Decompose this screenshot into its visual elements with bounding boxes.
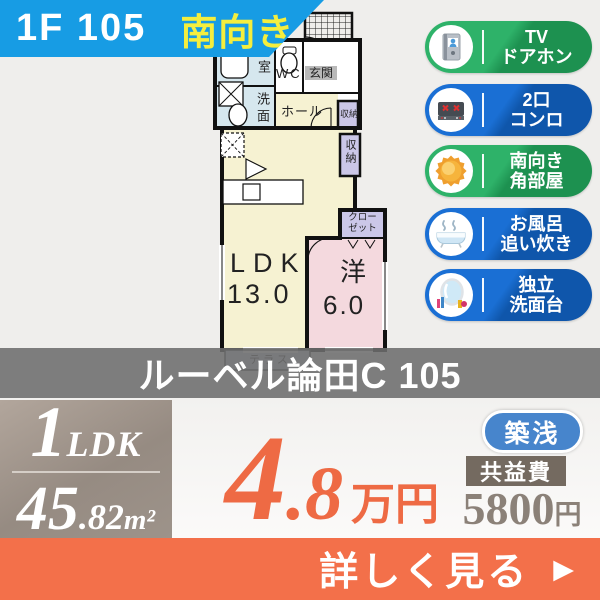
gas-stove-icon xyxy=(429,88,473,132)
badge-line2: ドアホン xyxy=(501,47,573,67)
feature-badge-tv-doorphone: TVドアホン xyxy=(425,21,592,73)
badge-line2: 追い炊き xyxy=(501,234,573,254)
bathtub-icon xyxy=(429,212,473,256)
feature-badge-stove: 2口コンロ xyxy=(425,84,592,136)
washstand-icon xyxy=(429,273,473,317)
badge-line1: TV xyxy=(525,27,548,47)
badge-line1: お風呂 xyxy=(510,214,564,234)
feature-badge-vanity: 独立洗面台 xyxy=(425,269,592,321)
badge-line1: 南向き xyxy=(510,151,564,171)
feature-badge-south-corner: 南向き角部屋 xyxy=(425,145,592,197)
tv-doorphone-icon xyxy=(429,25,473,69)
property-name-band: ルーベル論田C 105 xyxy=(0,348,600,398)
listing-card[interactable]: 浴室 洗面 WC 玄関 ホール 収納 収納 クローゼット LDK 13.0 洋 … xyxy=(0,0,600,600)
badge-divider xyxy=(482,30,484,64)
badge-line2: コンロ xyxy=(510,110,564,130)
banner-direction: 南向き xyxy=(180,2,294,56)
sun-icon xyxy=(429,149,473,193)
badge-line1: 2口 xyxy=(522,90,550,110)
feature-badge-bath-reheat: お風呂追い炊き xyxy=(425,208,592,260)
property-name: ルーベル論田C 105 xyxy=(138,347,461,399)
badge-divider xyxy=(482,278,484,312)
badge-line2: 角部屋 xyxy=(510,171,564,191)
badge-divider xyxy=(482,154,484,188)
badge-divider xyxy=(482,217,484,251)
banner-floor-unit: 1F 105 xyxy=(16,7,146,50)
badge-line1: 独立 xyxy=(519,275,555,295)
badge-divider xyxy=(482,93,484,127)
badge-line2: 洗面台 xyxy=(510,295,564,315)
feature-badges: TVドアホン 2口コンロ xyxy=(0,0,600,600)
